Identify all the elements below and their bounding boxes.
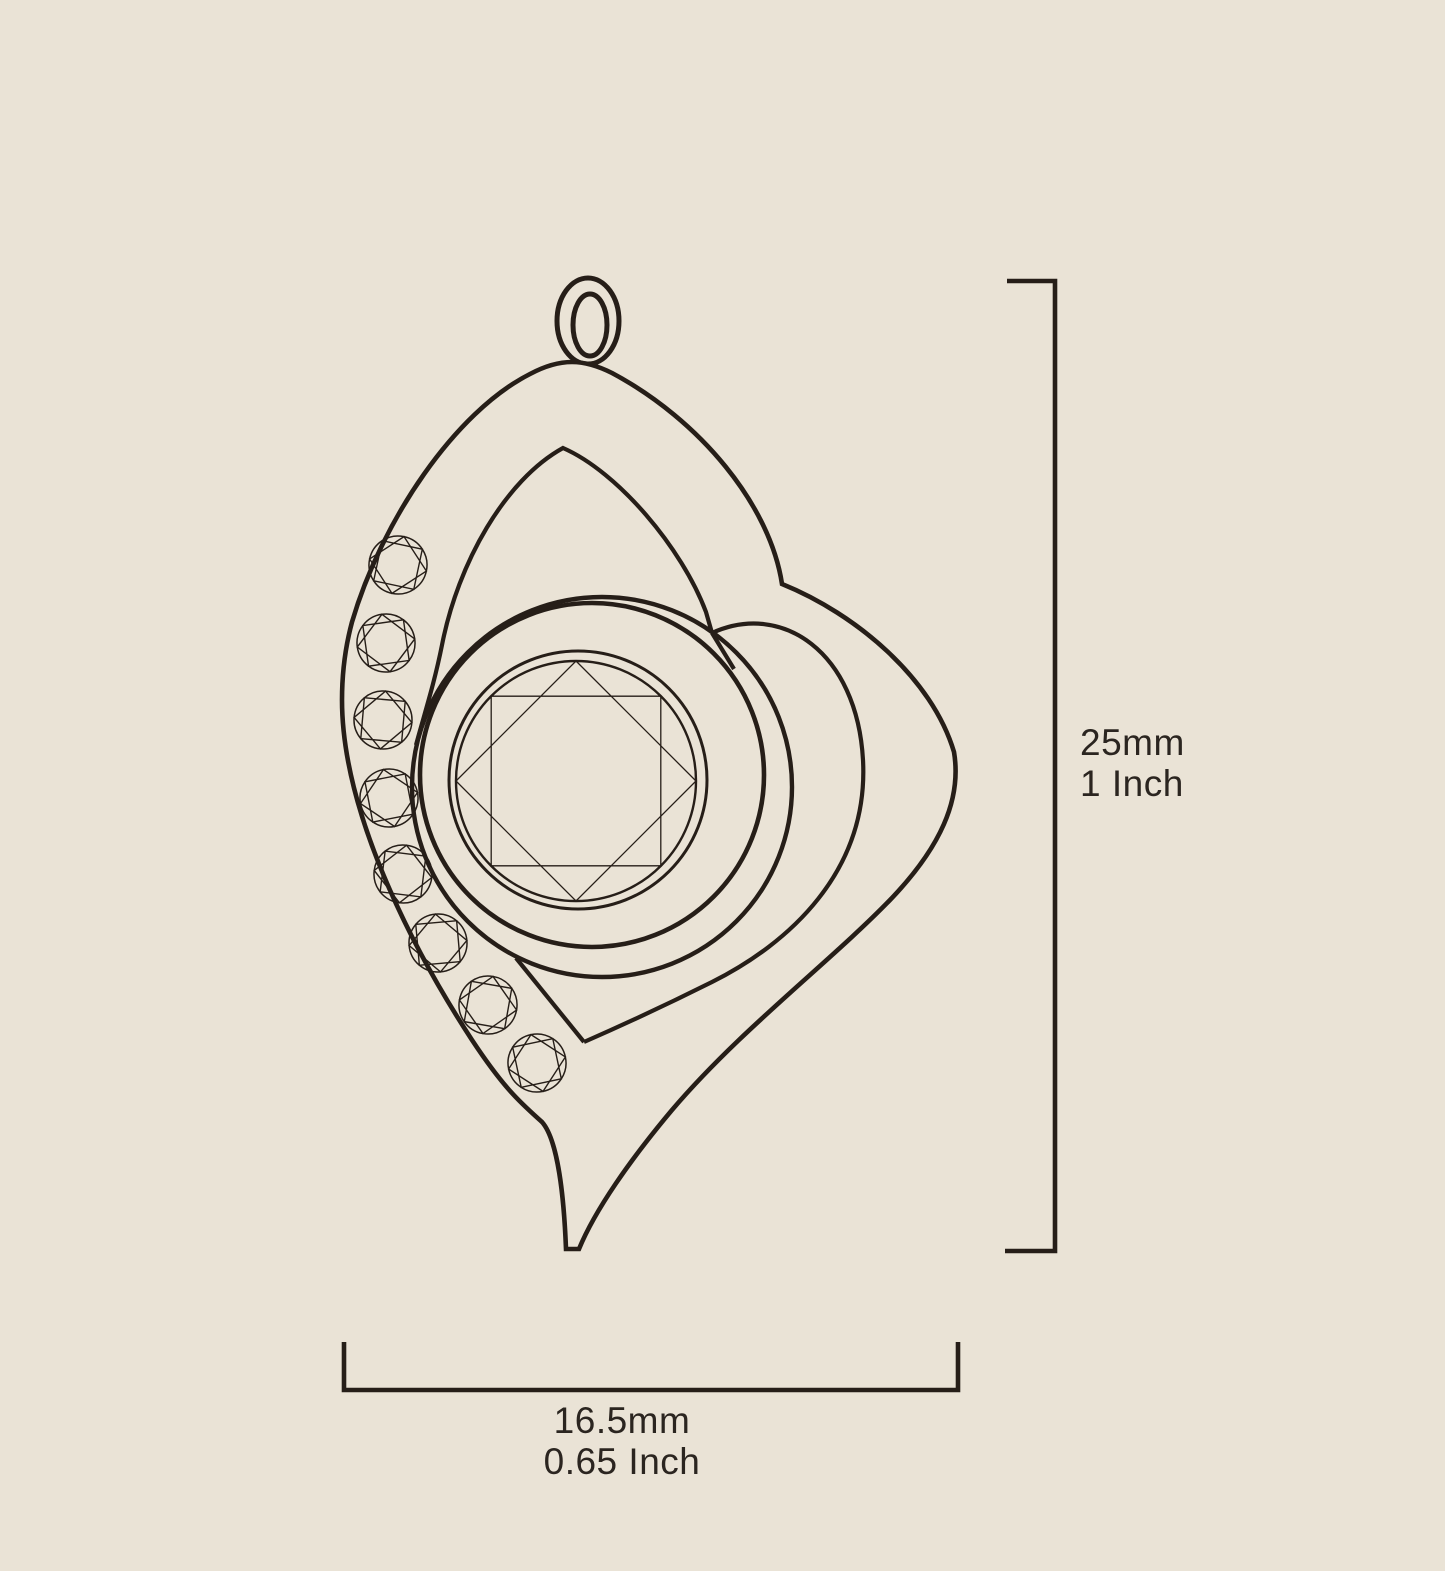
pendant-technical-drawing: 25mm 1 Inch 16.5mm 0.65 Inch: [0, 0, 1445, 1571]
height-value-mm: 25mm: [1080, 722, 1185, 763]
width-value-inch: 0.65 Inch: [462, 1441, 782, 1482]
pendant-line-art: [0, 0, 1445, 1571]
width-dimension-bracket: [344, 1342, 958, 1390]
bezel-circle: [420, 603, 764, 947]
width-dimension-label: 16.5mm 0.65 Inch: [462, 1400, 782, 1482]
width-value-mm: 16.5mm: [462, 1400, 782, 1441]
height-dimension-bracket: [1005, 281, 1055, 1251]
height-value-inch: 1 Inch: [1080, 763, 1185, 804]
height-dimension-label: 25mm 1 Inch: [1080, 722, 1185, 804]
bail-icon: [557, 278, 619, 364]
